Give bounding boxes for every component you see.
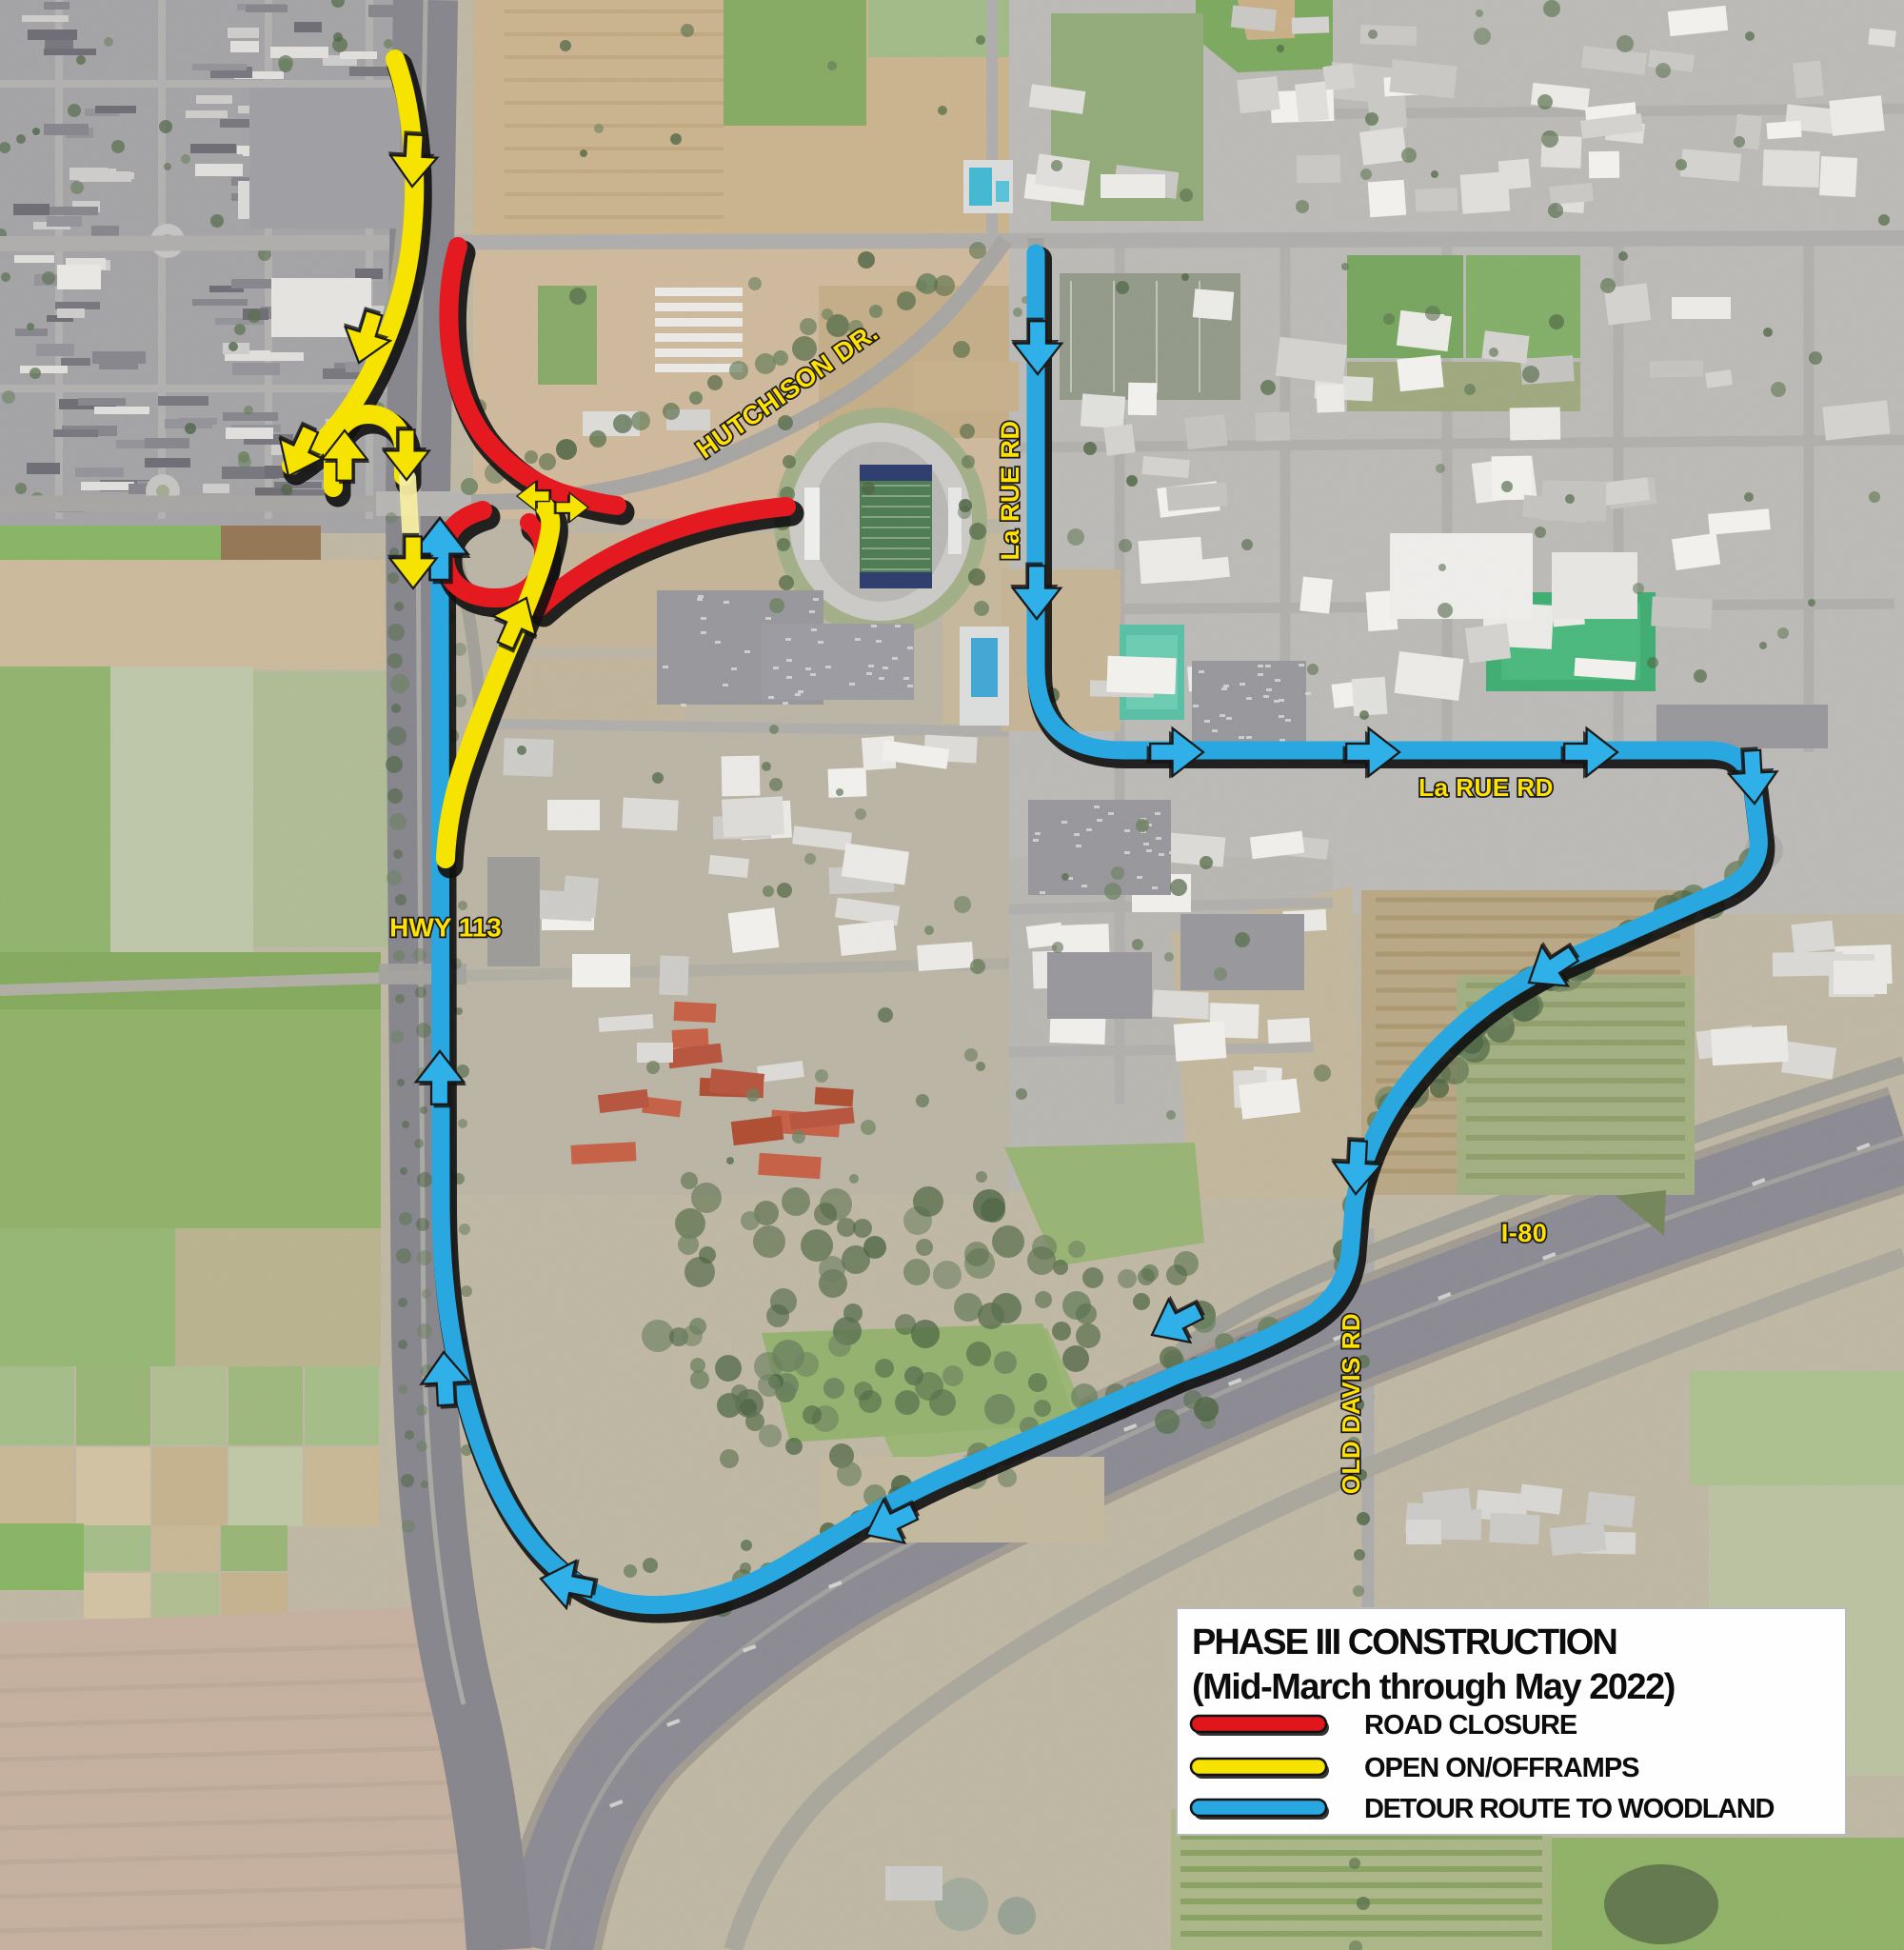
svg-text:OLD DAVIS RD: OLD DAVIS RD <box>1337 1313 1365 1494</box>
svg-text:I-80: I-80 <box>1501 1219 1548 1247</box>
svg-text:(Mid-March through May 2022): (Mid-March through May 2022) <box>1192 1667 1675 1707</box>
svg-text:HWY 113: HWY 113 <box>389 912 502 942</box>
svg-text:OPEN ON/OFFRAMPS: OPEN ON/OFFRAMPS <box>1364 1753 1639 1783</box>
svg-text:La RUE RD: La RUE RD <box>996 420 1024 560</box>
svg-text:ROAD CLOSURE: ROAD CLOSURE <box>1364 1710 1577 1741</box>
svg-text:DETOUR ROUTE TO WOODLAND: DETOUR ROUTE TO WOODLAND <box>1364 1794 1774 1824</box>
svg-text:PHASE III CONSTRUCTION: PHASE III CONSTRUCTION <box>1192 1622 1616 1662</box>
svg-text:La RUE RD: La RUE RD <box>1418 773 1554 802</box>
